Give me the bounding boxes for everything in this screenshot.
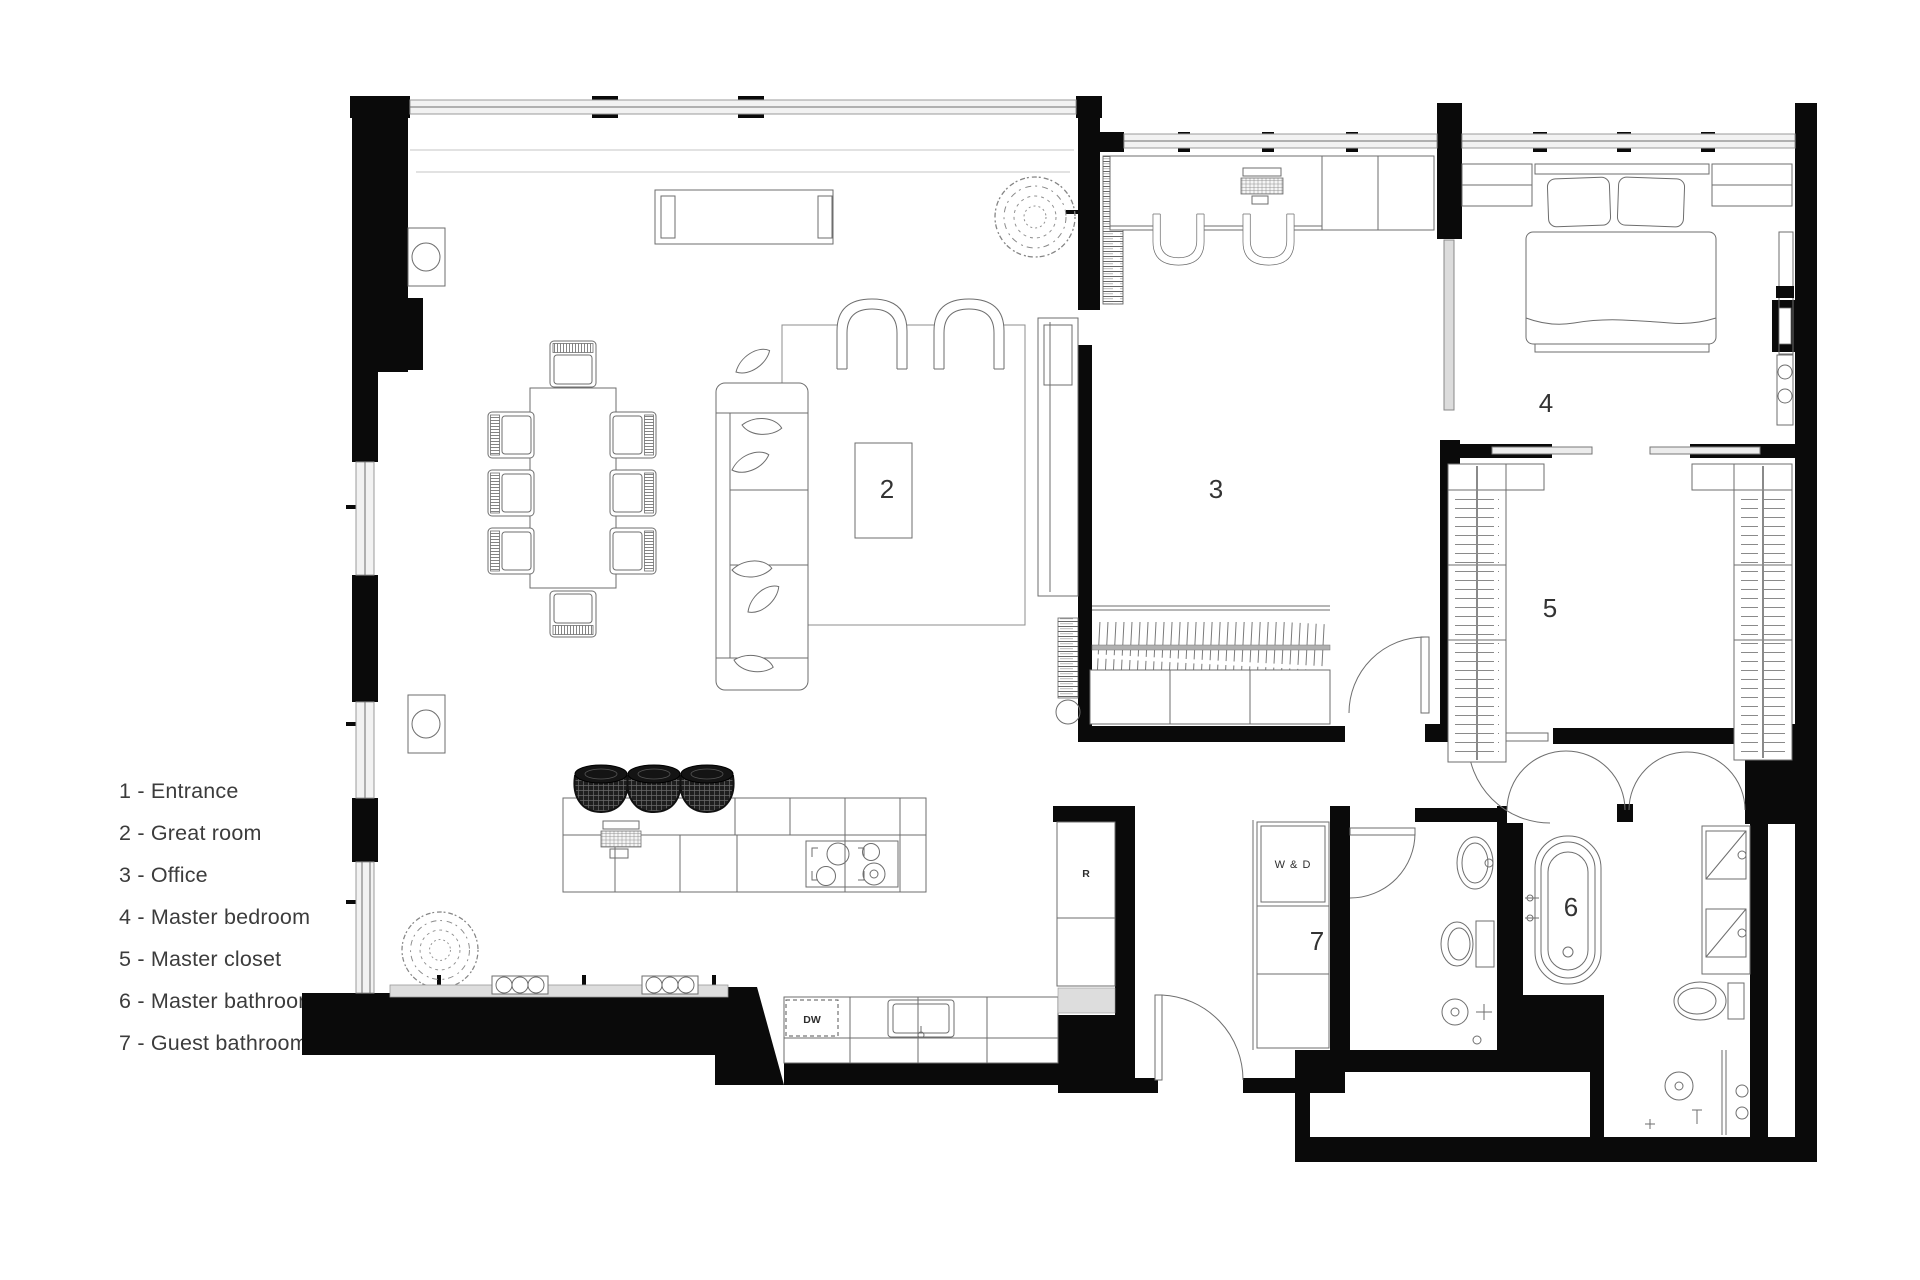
kitchen-counter-run xyxy=(784,997,1058,1063)
bathroom-double-doors xyxy=(1507,751,1745,810)
side-table-lamp-top xyxy=(408,228,445,286)
master-bathroom xyxy=(1525,826,1750,1135)
guest-bathroom-door xyxy=(1350,828,1415,898)
label-office: 3 xyxy=(1209,474,1223,504)
wardrobe-right xyxy=(1692,464,1792,760)
office-closet xyxy=(1090,606,1330,724)
bar-stools xyxy=(574,765,733,812)
bedroom-pocket-door xyxy=(1444,240,1454,410)
toilet-master xyxy=(1674,982,1744,1020)
shower xyxy=(1645,1050,1748,1135)
guest-shower-fixtures xyxy=(1442,999,1492,1044)
guest-bathroom xyxy=(1441,837,1494,1044)
label-master-bedroom: 4 xyxy=(1539,388,1553,418)
console-shelf xyxy=(1056,618,1080,724)
label-refrigerator: R xyxy=(1082,868,1090,880)
sideboard-bench xyxy=(655,190,833,244)
label-master-closet: 5 xyxy=(1543,593,1557,623)
entrance-door xyxy=(1155,995,1243,1080)
label-great-room: 2 xyxy=(880,474,894,504)
label-master-bathroom: 6 xyxy=(1564,892,1578,922)
pantry-refrigerator-column xyxy=(1057,822,1115,1013)
dining-table xyxy=(530,388,616,588)
side-table-lamp-bottom xyxy=(408,695,445,753)
master-closet xyxy=(1448,464,1792,762)
wall-unit-right xyxy=(1776,232,1794,425)
closet-sliding-doors xyxy=(1492,447,1760,454)
double-vanity xyxy=(1702,826,1750,974)
floor-plan-drawing: 2 3 4 5 6 7 W & D R DW xyxy=(0,0,1920,1280)
kitchen-island xyxy=(563,798,926,892)
plant-top xyxy=(995,177,1075,257)
corridor-door xyxy=(1349,637,1429,713)
bed xyxy=(1526,164,1716,352)
label-washer-dryer: W & D xyxy=(1275,859,1312,871)
sofa xyxy=(716,347,808,690)
label-dishwasher: DW xyxy=(803,1014,821,1026)
master-bedroom xyxy=(1462,164,1794,425)
armchairs xyxy=(837,299,1004,369)
guest-toilet xyxy=(1441,921,1494,967)
label-guest-bathroom: 7 xyxy=(1310,926,1324,956)
guest-sink xyxy=(1457,837,1493,889)
office xyxy=(1090,156,1434,724)
media-cabinet xyxy=(1038,318,1078,596)
wardrobe-left xyxy=(1448,464,1544,762)
floor-plan-page: 1 - Entrance 2 - Great room 3 - Office 4… xyxy=(0,0,1920,1280)
